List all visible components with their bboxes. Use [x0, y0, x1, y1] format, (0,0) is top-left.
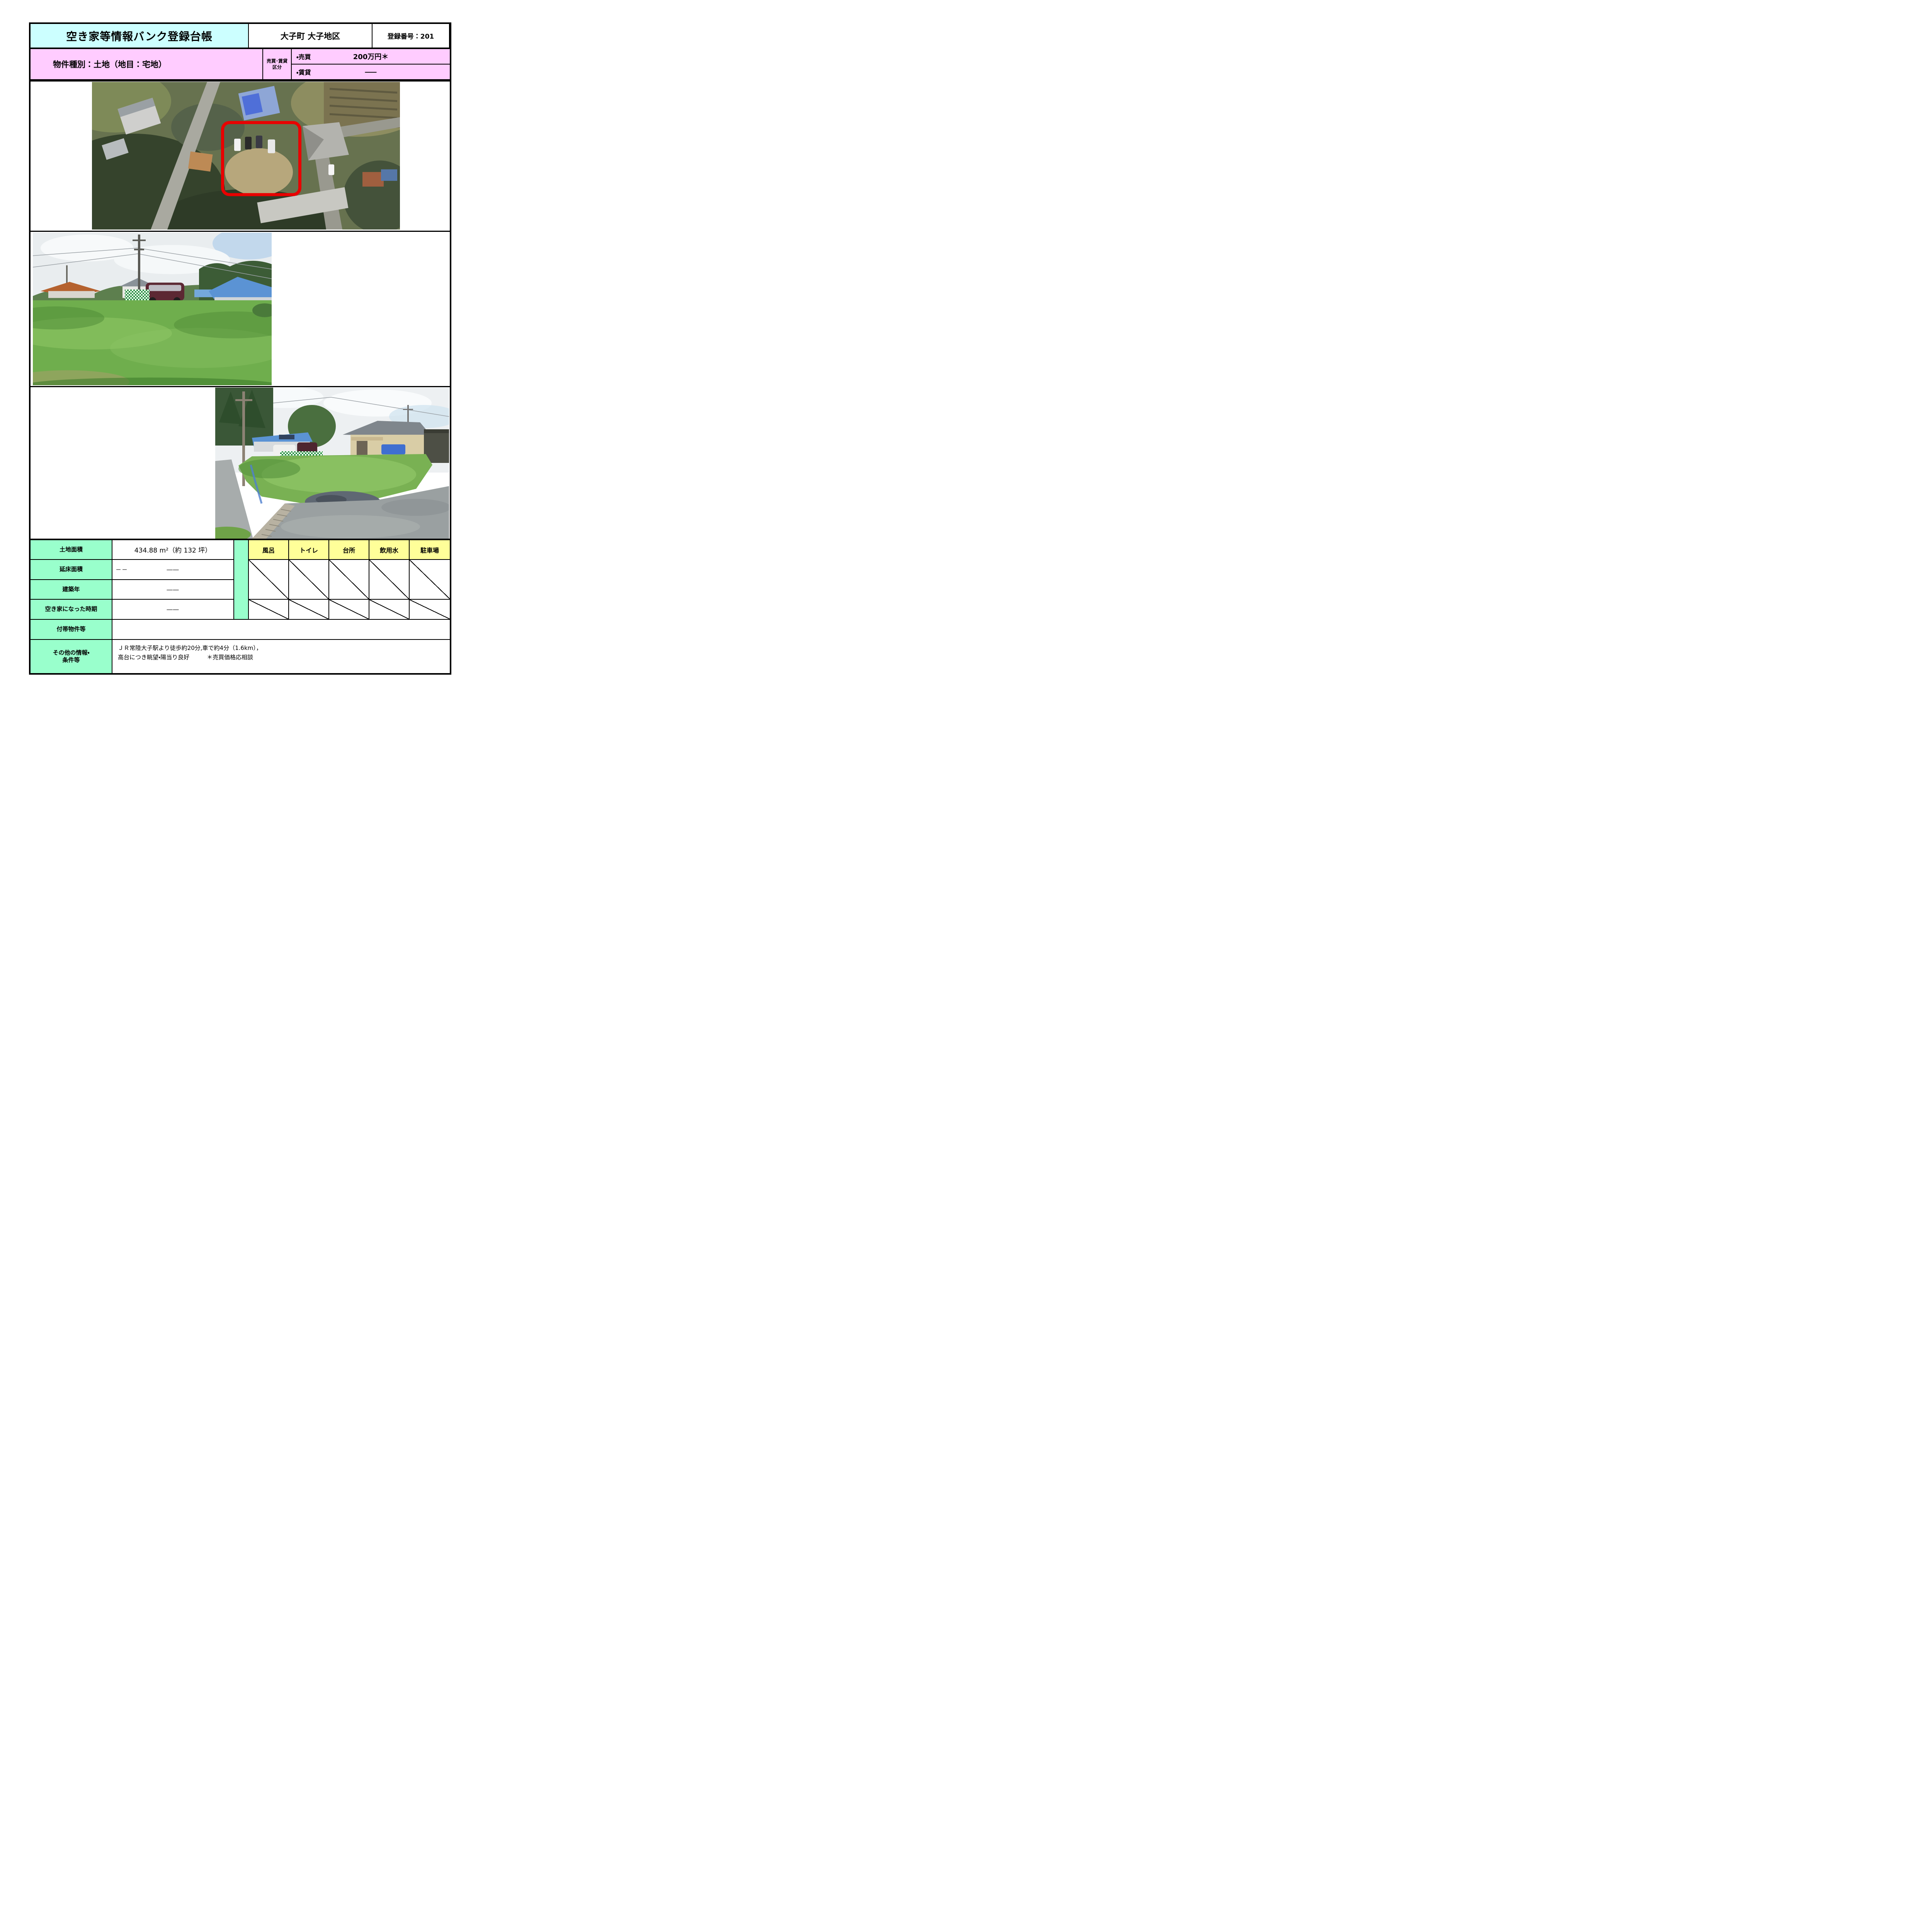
- other-info-label-line2: 条件等: [62, 656, 80, 664]
- header-row: 空き家等情報バンク登録台帳 大子町 大子地区 登録番号：201: [29, 22, 451, 49]
- attached-items-value: [112, 620, 450, 639]
- category-line1: 売買･賃貸: [267, 58, 287, 64]
- sale-label: ・売買: [296, 52, 311, 61]
- spacer-strip: [234, 540, 248, 619]
- facility-cell-water-upper: [369, 560, 409, 599]
- sale-price: 200万円＊: [292, 51, 450, 61]
- facility-cell-bath-lower: [249, 600, 288, 619]
- aerial-photo: [92, 82, 400, 230]
- facility-cell-kitchen-lower: [329, 600, 369, 619]
- rent-price: ――: [292, 68, 450, 75]
- facility-cell-bath-upper: [249, 560, 288, 599]
- facility-header-kitchen: 台所: [329, 540, 369, 559]
- floor-area-dash-left: －－: [116, 566, 128, 574]
- field-photo: [33, 233, 272, 385]
- facility-header-parking: 駐車場: [410, 540, 450, 559]
- other-info-label: その他の情報・ 条件等: [31, 640, 112, 673]
- facility-header-water: 飲用水: [369, 540, 409, 559]
- vacant-since-label: 空き家になった時期: [31, 600, 112, 619]
- floor-area-dash-center: ――: [167, 566, 179, 573]
- rent-label: ・賃貸: [296, 67, 311, 77]
- facility-cell-toilet-lower: [289, 600, 328, 619]
- photo-section: [29, 80, 451, 540]
- property-type-row: 物件種別：土地（地目：宅地） 売買･賃貸 区分 ・売買 200万円＊ ・賃貸 ―…: [29, 48, 451, 82]
- land-area-label: 土地面積: [31, 540, 112, 559]
- details-table: 土地面積 434.88 m²（約 132 坪） 延床面積 －－ ―― 建築年 ―…: [29, 539, 451, 675]
- photo-divider-1: [31, 231, 450, 232]
- build-year-value: ――: [112, 580, 233, 599]
- category-line2: 区分: [272, 64, 282, 70]
- attached-items-label: 付帯物件等: [31, 620, 112, 639]
- other-info-line2: 高台につき眺望・陽当り良好 ＊売買価格応相談: [118, 653, 444, 662]
- transaction-category-label: 売買･賃貸 区分: [263, 49, 291, 79]
- photo-divider-2: [31, 386, 450, 387]
- facility-header-bath: 風呂: [249, 540, 288, 559]
- other-info-line1: ＪＲ常陸大子駅より徒歩約20分,車で約4分（1.6km），: [118, 643, 444, 653]
- district-label: 大子町 大子地区: [249, 24, 372, 48]
- street-photo: [215, 388, 449, 539]
- floor-area-value: －－ ――: [112, 560, 233, 579]
- vacant-since-value: ――: [112, 600, 233, 619]
- facility-cell-toilet-upper: [289, 560, 328, 599]
- facility-cell-water-lower: [369, 600, 409, 619]
- rent-price-row: ・賃貸 ――: [292, 65, 450, 79]
- land-area-value: 434.88 m²（約 132 坪）: [112, 540, 233, 559]
- floor-area-label: 延床面積: [31, 560, 112, 579]
- sale-price-row: ・売買 200万円＊: [292, 49, 450, 64]
- facility-header-toilet: トイレ: [289, 540, 328, 559]
- other-info-label-line1: その他の情報・: [53, 649, 89, 657]
- facility-cell-kitchen-upper: [329, 560, 369, 599]
- document-title: 空き家等情報バンク登録台帳: [31, 24, 248, 48]
- other-info-value: ＪＲ常陸大子駅より徒歩約20分,車で約4分（1.6km）， 高台につき眺望・陽当…: [112, 640, 450, 673]
- registration-number: 登録番号：201: [373, 24, 449, 48]
- facility-cell-parking-upper: [410, 560, 450, 599]
- facility-cell-parking-lower: [410, 600, 450, 619]
- build-year-label: 建築年: [31, 580, 112, 599]
- registration-ledger-page: 空き家等情報バンク登録台帳 大子町 大子地区 登録番号：201 物件種別：土地（…: [0, 0, 479, 678]
- property-type: 物件種別：土地（地目：宅地）: [31, 49, 262, 79]
